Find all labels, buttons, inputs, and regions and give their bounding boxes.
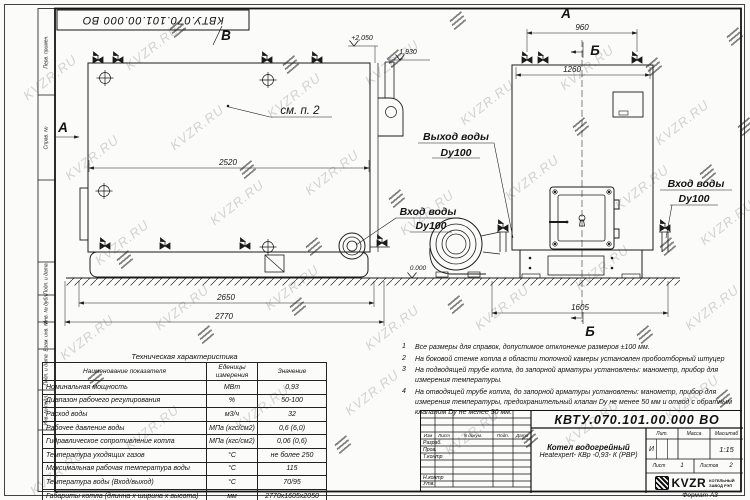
note-number: 4 xyxy=(402,388,415,418)
tech-cell: 0,93 xyxy=(257,381,326,394)
tech-cell: Температура воды (Вход/выход) xyxy=(43,476,206,489)
tech-cell: 0,06 (0,6) xyxy=(257,435,326,448)
kvzr-logo-mark xyxy=(449,10,466,30)
sheet-label: Лист xyxy=(648,459,670,473)
tb-role-row: Утв. xyxy=(421,481,455,487)
strip-cell: Взам. инв. № xyxy=(38,322,55,349)
drawing-sheet: KVZR.RUKVZR.RUKVZR.RUKVZR.RUKVZR.RUKVZR.… xyxy=(0,0,750,500)
tb-header-cell: Лист xyxy=(435,432,453,439)
table-row: Номинальная мощностьМВт0,93 xyxy=(43,380,326,394)
tb-header-cell: N докум. xyxy=(453,432,493,439)
tech-col-header: Значение xyxy=(257,363,326,380)
tech-cell: мм xyxy=(206,490,257,500)
title-block: КВТУ.070.101.00.000 ВО Изм Лист N докум.… xyxy=(420,410,742,492)
note-text: Все размеры для справок, допустимое откл… xyxy=(415,343,742,353)
kvzr-logo-mark xyxy=(572,116,589,136)
tb-role-row: Пров. xyxy=(421,446,455,453)
tech-cell: 115 xyxy=(257,463,326,476)
note-item: 1Все размеры для справок, допустимое отк… xyxy=(402,343,742,353)
lit-value: И xyxy=(646,439,657,459)
tech-cell: 0,6 (6,0) xyxy=(257,422,326,435)
kvzr-logo-text: KVZR xyxy=(672,476,707,490)
mass-label: Масса xyxy=(678,428,710,439)
kvzr-logo-mark xyxy=(388,188,405,208)
note-number: 3 xyxy=(402,366,415,386)
tech-cell: °С xyxy=(206,476,257,489)
scale-value: 1:15 xyxy=(710,439,743,459)
tech-col-header: Наименование показателя xyxy=(43,363,206,380)
product-name: Котел водогрейный Heatexpert- КВр -0,93-… xyxy=(531,428,646,473)
tb-header-cell: Изм xyxy=(421,432,435,439)
tech-cell: не более 250 xyxy=(257,449,326,462)
tech-cell: 32 xyxy=(257,408,326,421)
note-number: 2 xyxy=(402,355,415,365)
lit-label: Лит. xyxy=(646,428,678,439)
note-item: 3На подводящей трубе котла, до запорной … xyxy=(402,366,742,386)
kvzr-logo-icon xyxy=(655,476,669,490)
strip-cell: Перв. примен. xyxy=(38,8,55,95)
sheets-label: Листов xyxy=(696,459,722,473)
product-name-line2: Heatexpert- КВр -0,93- К (РВР) xyxy=(539,452,637,459)
tb-role-row: Т.контр xyxy=(421,453,455,460)
product-name-line1: Котел водогрейный xyxy=(547,443,630,452)
tech-cell: МПа (кгс/см2) xyxy=(206,422,257,435)
table-row: Температура воды (Вход/выход)°С70/95 xyxy=(43,475,326,489)
doc-number: КВТУ.070.101.00.000 ВО xyxy=(531,411,743,428)
strip-cell: Справ. № xyxy=(38,95,55,180)
strip-label: Инв. № дубл. xyxy=(44,293,50,324)
table-row: Максимальная рабочая температура воды°С1… xyxy=(43,462,326,476)
table-row: Гидравлическое сопротивление котлаМПа (к… xyxy=(43,434,326,448)
kvzr-logo-mark xyxy=(659,236,676,256)
table-row: Расход водым3/ч32 xyxy=(43,407,326,421)
tech-cell: 70/95 xyxy=(257,476,326,489)
kvzr-logo-mark xyxy=(699,163,716,183)
tech-cell: МВт xyxy=(206,381,257,394)
kvzr-logo-mark xyxy=(726,26,743,46)
kvzr-logo-mark xyxy=(636,324,653,344)
strip-label: Перв. примен. xyxy=(44,35,50,68)
kvzr-logo-mark xyxy=(239,159,256,179)
tech-cell: МПа (кгс/см2) xyxy=(206,435,257,448)
kvzr-logo-mark xyxy=(334,434,351,454)
kvzr-logo-mark xyxy=(305,236,322,256)
kvzr-logo-mark xyxy=(289,296,306,316)
tech-cell: Рабочее давление воды xyxy=(43,422,206,435)
kvzr-logo-mark xyxy=(386,48,403,68)
kvzr-logo-mark xyxy=(282,54,299,74)
note-item: 2На боковой стенке котла в области топоч… xyxy=(402,355,742,365)
tb-role-row: Н.контр xyxy=(421,474,455,481)
tech-cell: Температура уходящих газов xyxy=(43,449,206,462)
tech-cell: Диапазон рабочего регулирования xyxy=(43,395,206,408)
tech-cell: °С xyxy=(206,449,257,462)
manufacturer-logo: KVZR КОТЕЛЬНЫЙ ЗАВОД РЭП xyxy=(646,473,743,493)
table-row: Диапазон рабочего регулирования%50-100 xyxy=(43,394,326,408)
tech-col-header: Еденицы измерения xyxy=(206,363,257,380)
tech-cell: 2770х1605х2050 xyxy=(257,490,326,500)
tech-cell: Гидравлическое сопротивление котла xyxy=(43,435,206,448)
strip-cell: Инв. № дубл. xyxy=(38,295,55,322)
table-row: Рабочее давление водыМПа (кгс/см2)0,6 (6… xyxy=(43,421,326,435)
note-text: На боковой стенке котла в области топочн… xyxy=(415,355,742,365)
tech-table-title: Техническая характеристика xyxy=(42,352,327,361)
tech-cell: Номинальная мощность xyxy=(43,381,206,394)
kvzr-logo-mark xyxy=(447,294,464,314)
tech-cell: м3/ч xyxy=(206,408,257,421)
tech-cell: 50-100 xyxy=(257,395,326,408)
note-text: На подводящей трубе котла, до запорной а… xyxy=(415,366,742,386)
note-number: 1 xyxy=(402,343,415,353)
strip-label: Справ. № xyxy=(44,126,50,149)
kvzr-logo-mark xyxy=(645,56,662,76)
tech-table: Наименование показателя Еденицы измерени… xyxy=(42,362,327,500)
format-label: Формат А3 xyxy=(660,492,740,499)
strip-label: Взам. инв. № xyxy=(44,320,50,351)
sheets-value: 2 xyxy=(723,459,739,473)
top-reference-stamp: КВТУ.070.101.00.000 ВО xyxy=(57,10,249,30)
tech-cell: % xyxy=(206,395,257,408)
tech-cell: Габариты котла (длинна х ширина х высота… xyxy=(43,490,206,500)
table-row: Температура уходящих газов°Сне более 250 xyxy=(43,448,326,462)
strip-label: Подп. и дата xyxy=(44,263,50,294)
table-row: Габариты котла (длинна х ширина х высота… xyxy=(43,489,326,500)
top-stamp-number: КВТУ.070.101.00.000 ВО xyxy=(82,14,224,26)
tb-header-cell: Дата xyxy=(513,432,531,439)
strip-cell: Подп. и дата xyxy=(38,262,55,295)
kvzr-logo-mark xyxy=(116,249,133,269)
tech-cell: Максимальная рабочая температура воды xyxy=(43,463,206,476)
scale-label: Масштаб xyxy=(710,428,743,439)
tech-cell: °С xyxy=(206,463,257,476)
logo-subtitle-2: ЗАВОД РЭП xyxy=(709,483,734,488)
tb-header-cell: Подп. xyxy=(493,432,513,439)
kvzr-logo-mark xyxy=(197,324,214,344)
tb-role-row: Разраб. xyxy=(421,439,455,446)
tech-table-header: Наименование показателя Еденицы измерени… xyxy=(43,363,326,380)
sheet-value: 1 xyxy=(673,459,691,473)
kvzr-logo-mark xyxy=(737,116,750,136)
tech-cell: Расход воды xyxy=(43,408,206,421)
notes-list: 1Все размеры для справок, допустимое отк… xyxy=(402,343,742,420)
